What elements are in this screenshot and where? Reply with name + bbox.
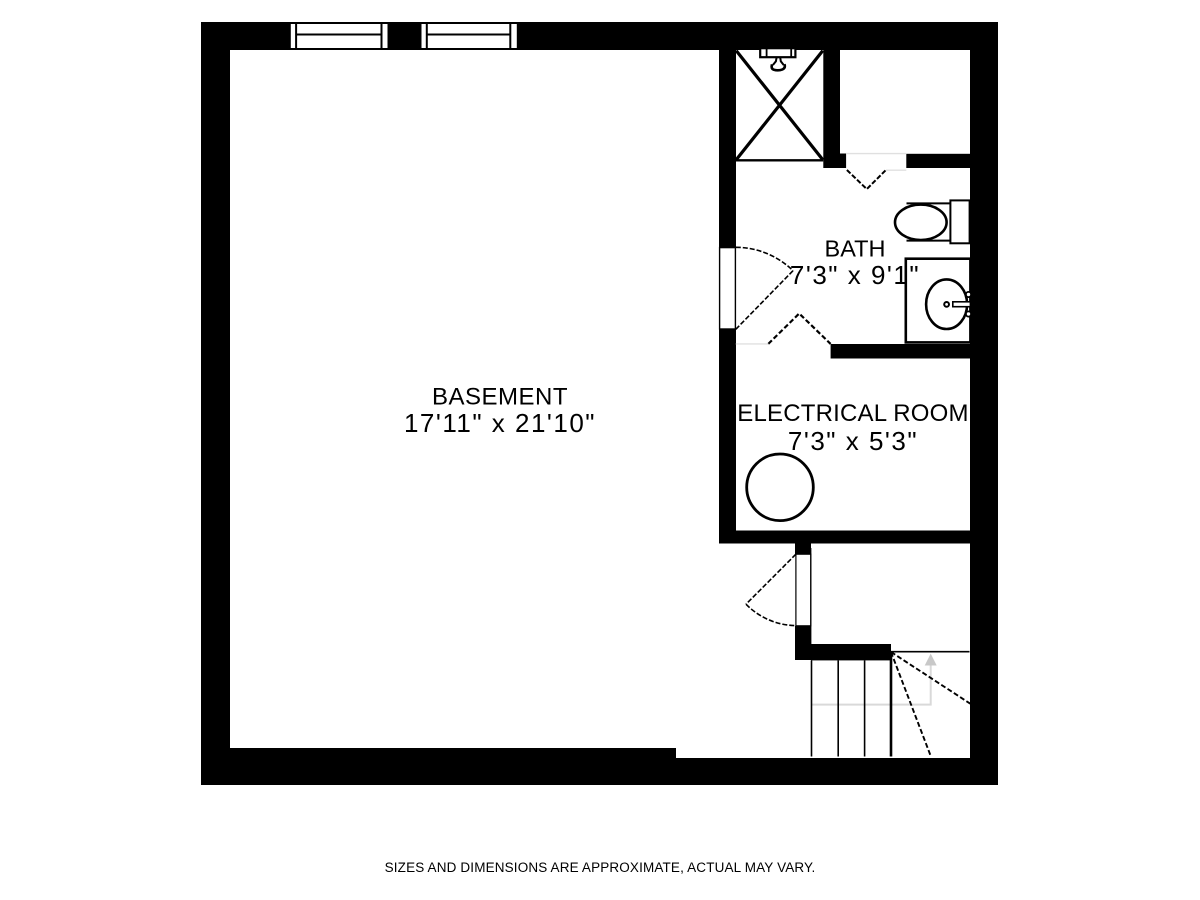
svg-text:BATH: BATH (825, 236, 886, 262)
svg-text:ELECTRICAL ROOM: ELECTRICAL ROOM (737, 400, 968, 427)
svg-text:7'3" x 5'3": 7'3" x 5'3" (788, 426, 918, 456)
svg-text:SIZES AND DIMENSIONS ARE APPRO: SIZES AND DIMENSIONS ARE APPROXIMATE, AC… (385, 860, 816, 875)
svg-text:7'3" x 9'1": 7'3" x 9'1" (790, 260, 920, 290)
svg-text:BASEMENT: BASEMENT (432, 383, 568, 410)
svg-text:17'11" x 21'10": 17'11" x 21'10" (404, 408, 596, 438)
